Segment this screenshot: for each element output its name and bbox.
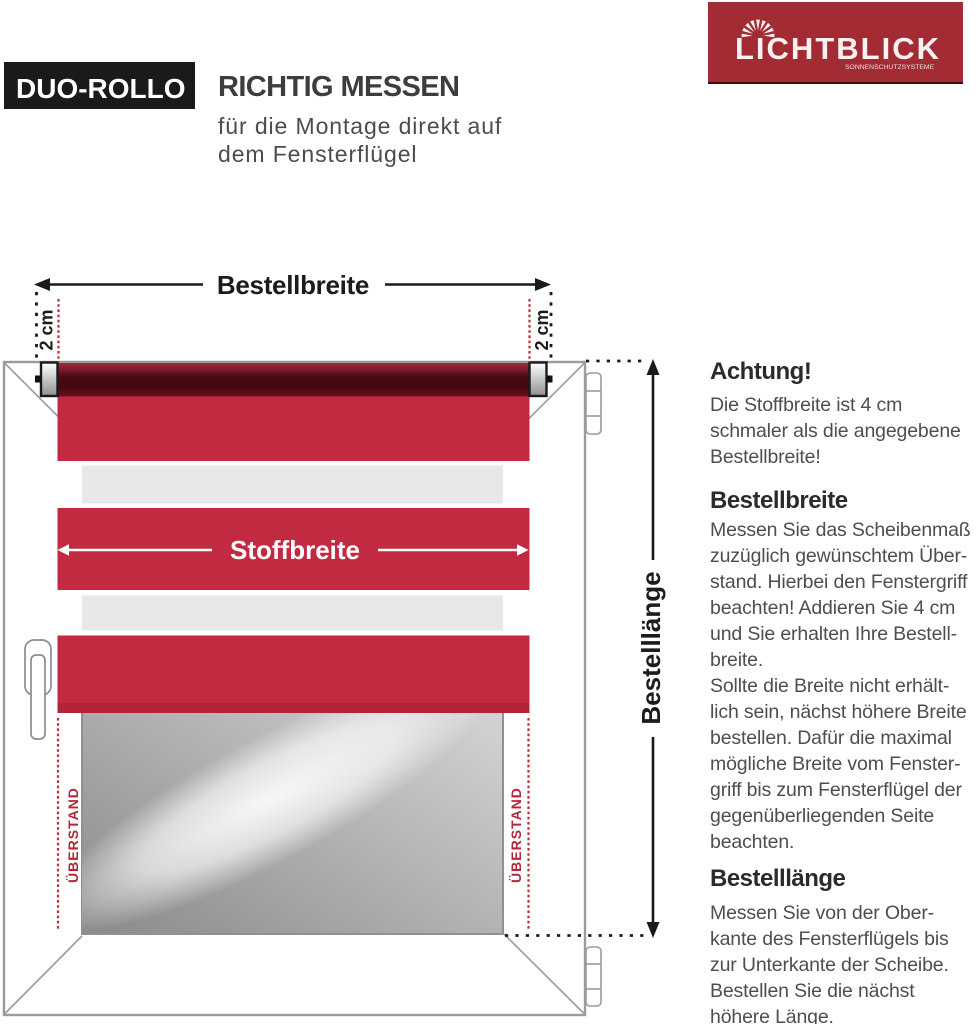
svg-text:ÜBERSTAND: ÜBERSTAND (508, 787, 524, 883)
svg-text:2 cm: 2 cm (532, 309, 552, 350)
svg-text:2 cm: 2 cm (37, 309, 57, 350)
svg-text:ÜBERSTAND: ÜBERSTAND (65, 787, 81, 883)
svg-text:Stoffbreite: Stoffbreite (230, 535, 360, 565)
svg-text:Bestelllänge: Bestelllänge (636, 571, 666, 724)
svg-text:Bestellbreite: Bestellbreite (217, 270, 369, 300)
